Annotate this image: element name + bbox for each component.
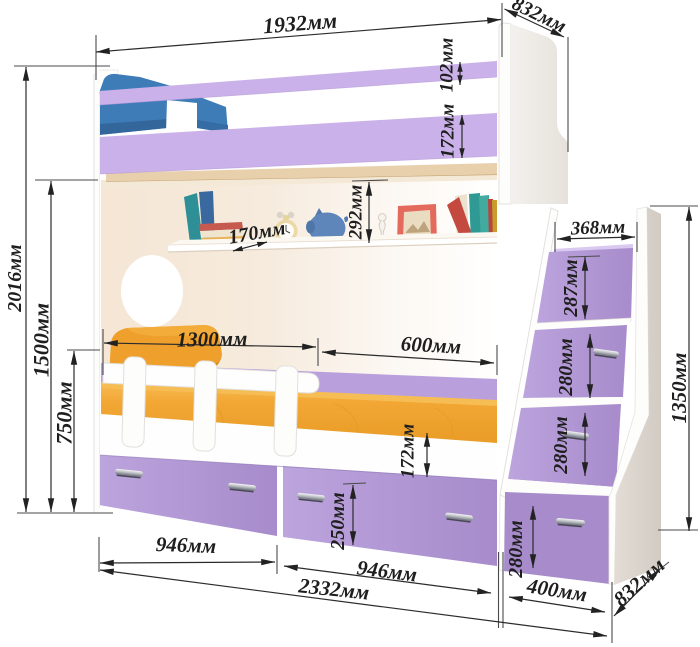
svg-text:1500мм: 1500мм	[29, 303, 54, 377]
svg-text:280мм: 280мм	[550, 416, 572, 475]
svg-text:600мм: 600мм	[400, 331, 461, 358]
svg-text:172мм: 172мм	[438, 104, 459, 159]
svg-text:1300мм: 1300мм	[176, 326, 247, 351]
svg-text:250мм: 250мм	[327, 492, 349, 551]
svg-text:280мм: 280мм	[505, 520, 527, 579]
svg-text:172мм: 172мм	[398, 424, 419, 479]
svg-text:368мм: 368мм	[569, 217, 625, 240]
svg-text:292мм: 292мм	[346, 185, 367, 241]
svg-text:102мм: 102мм	[437, 38, 458, 93]
svg-text:280мм: 280мм	[555, 338, 577, 397]
svg-text:750мм: 750мм	[52, 381, 77, 444]
svg-text:287мм: 287мм	[560, 259, 582, 318]
svg-text:2016мм: 2016мм	[4, 244, 26, 313]
svg-text:1350мм: 1350мм	[667, 353, 691, 424]
svg-text:946мм: 946мм	[155, 532, 216, 558]
